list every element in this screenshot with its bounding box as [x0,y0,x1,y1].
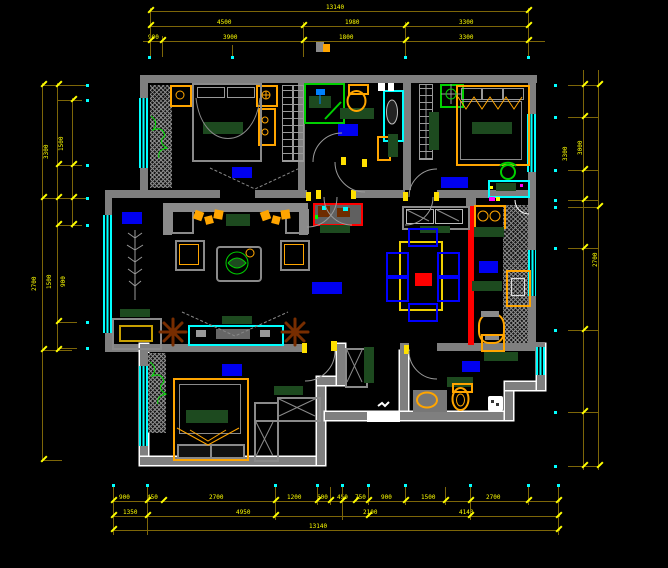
dim-line-v [528,487,529,505]
desk-chair [500,163,516,179]
snap-dot [527,56,530,59]
snap-dot [367,484,370,487]
dim-text: 2700 [32,276,38,292]
dim-line-h [150,11,528,12]
snap-dot [231,56,234,59]
bed-bl-fold [177,428,239,445]
dim-line-v [528,8,529,57]
dim-line-v [57,83,58,352]
dim-line-h [143,41,545,42]
snap-dot [86,197,89,200]
dim-line-v [598,70,599,470]
snap-dot [86,84,89,87]
dim-line-v [342,487,343,520]
snap-dot [554,116,557,119]
snap-dot [554,84,557,87]
dim-line-v [445,487,446,505]
snap-dot [554,465,557,468]
snap-dot [274,484,277,487]
bed-tr-zigzag [458,97,522,109]
dim-line-h [42,198,87,199]
snap-dot [112,484,115,487]
swing-lines [182,168,300,336]
snap-dot [527,484,530,487]
dim-line-h [42,460,62,461]
north-glyph [378,402,389,406]
snap-dot [86,321,89,324]
snap-dot [554,206,557,209]
snap-dot [86,347,89,350]
nightstand-lamps [176,91,270,135]
snap-dot [554,247,557,250]
dim-line-v [150,8,151,57]
snap-dot [554,169,557,172]
dim-line-v [317,487,318,505]
floor-plant-left [160,319,186,345]
dim-line-h [42,85,87,86]
dim-line-h [113,516,560,517]
snap-dot [554,199,557,202]
shower-glass [325,102,341,119]
dim-text: 1500 [59,136,65,152]
snap-dot [554,411,557,414]
coffee-table-plant [226,249,254,274]
dim-line-h [150,26,528,27]
dim-text: 3300 [563,146,569,162]
dim-line-v [42,83,43,462]
dim-text: 900 [61,275,67,288]
dim-line-v [405,487,406,505]
dim-text: 3300 [44,144,50,160]
dim-text: 1500 [47,274,53,290]
dim-line-h [113,530,560,531]
washbasin-bowl [387,100,398,124]
snap-dot [341,484,344,487]
snap-dot [148,56,151,59]
dim-line-h [113,501,560,502]
floor-plan-canvas: 13140 4500 1980 3300 900 3900 1800 3300 … [0,0,668,568]
snap-dot [554,329,557,332]
snap-dot [469,484,472,487]
stove-burners [478,211,500,221]
plant-scribble [150,116,167,404]
toilet-top-bowl [348,91,366,111]
snap-dot [404,484,407,487]
snap-dot [86,224,89,227]
snap-dot [404,56,407,59]
ceiling-fan-blades [441,84,461,104]
snap-dot [86,99,89,102]
toilet-br-inner [457,394,465,406]
dim-line-v [368,487,369,505]
kitchen-door-arc [515,200,529,214]
dim-line-h [57,322,77,323]
vanity-sink-bowl [417,393,437,408]
coat-stand [127,230,143,300]
floor-plant-right [282,319,308,345]
snap-dot [86,164,89,167]
toilet-br-bowl [453,388,469,410]
snap-dot [316,484,319,487]
snap-dot [557,484,560,487]
dim-line-v [330,487,331,505]
bed-tl-arch [196,98,260,139]
door-arcs [305,133,437,381]
snap-dot [146,484,149,487]
dim-line-v [147,487,148,535]
